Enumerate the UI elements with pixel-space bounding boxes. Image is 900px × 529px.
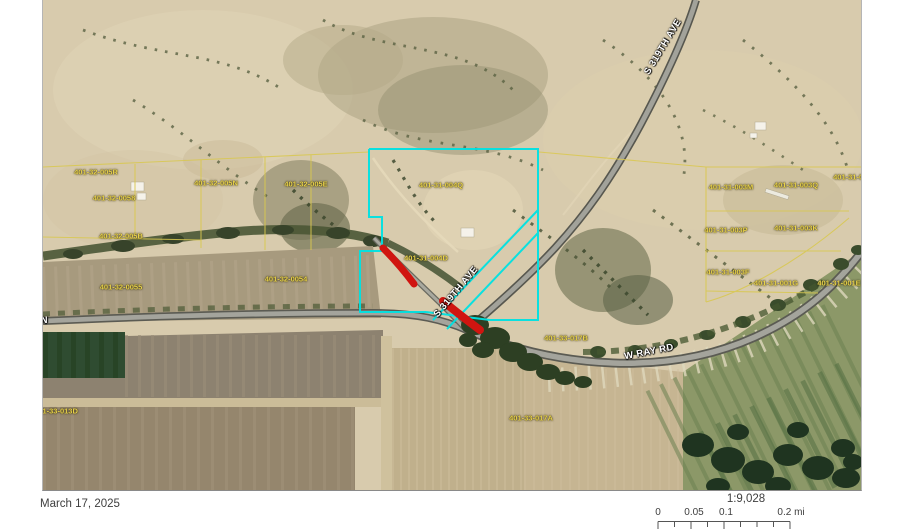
map-footer: March 17, 2025 1:9,028 0 0.05 0.1 0.2 mi [0, 491, 900, 529]
map-canvas[interactable]: 401-32-005R 401-32-0058 401-32-005B 401-… [42, 0, 862, 491]
map-date: March 17, 2025 [40, 498, 120, 510]
scale-ratio: 1:9,028 [696, 493, 796, 505]
scale-tick-label: 0 [655, 507, 661, 518]
scale-tick-label: 0.05 [684, 507, 703, 518]
map-viewer-page: { "map": { "parcel_labels": [ {"text": "… [0, 0, 900, 529]
scale-tick-label: 0.1 [719, 507, 733, 518]
aerial-imagery [43, 0, 862, 491]
scale-bar-ruler [650, 518, 810, 529]
scale-tick-label: 0.2 mi [777, 507, 804, 518]
